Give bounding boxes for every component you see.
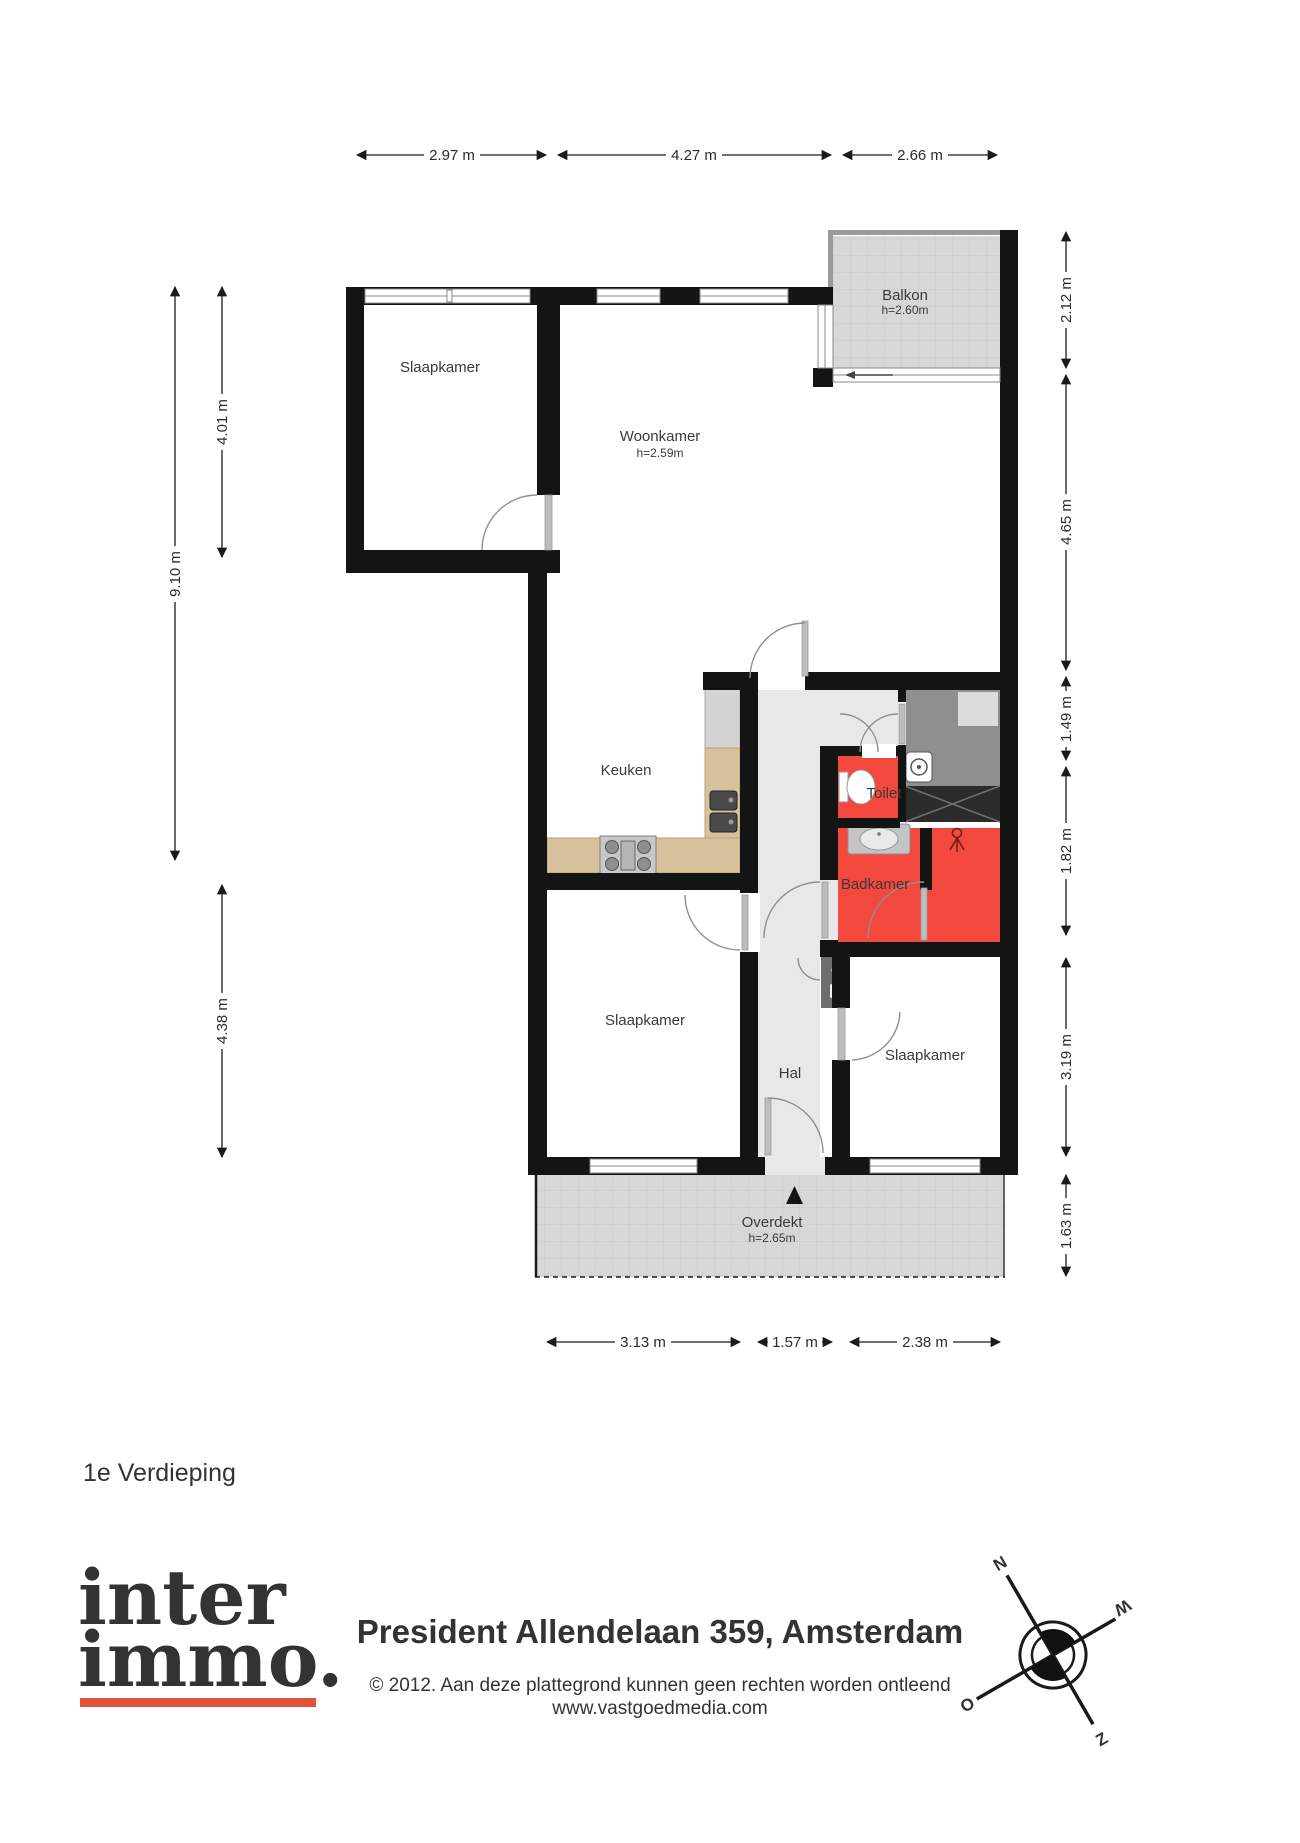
toilet-label: Toilet — [866, 785, 902, 802]
svg-text:2.66 m: 2.66 m — [897, 147, 943, 164]
washing-machine-icon — [906, 752, 932, 782]
address-title: President Allendelaan 359, Amsterdam — [357, 1613, 963, 1650]
copyright-text: © 2012. Aan deze plattegrond kunnen geen… — [369, 1675, 950, 1696]
balkon-label: Balkon — [882, 287, 928, 304]
compass-east-label: O — [957, 1693, 978, 1716]
svg-text:2.12 m: 2.12 m — [1058, 277, 1075, 323]
website-text: www.vastgoedmedia.com — [551, 1698, 767, 1719]
floorplan-canvas: Balkon h=2.60m Woonkamer h=2.59m Slaapka… — [0, 0, 1300, 1838]
slaapkamer-rechts-label: Slaapkamer — [885, 1047, 965, 1064]
dimension-right: 2.12 m 4.65 m 1.49 m 1.82 m 3.19 m 1.63 … — [1057, 232, 1075, 1276]
svg-text:2.97 m: 2.97 m — [429, 147, 475, 164]
svg-text:2.38 m: 2.38 m — [902, 1334, 948, 1351]
svg-text:4.65 m: 4.65 m — [1058, 499, 1075, 545]
svg-text:4.27 m: 4.27 m — [671, 147, 717, 164]
keuken-label: Keuken — [601, 762, 652, 779]
svg-text:4.38 m: 4.38 m — [214, 998, 231, 1044]
badkamer-label: Badkamer — [841, 876, 909, 893]
closet-shelf — [958, 692, 998, 726]
svg-text:3.13 m: 3.13 m — [620, 1334, 666, 1351]
logo-underline — [80, 1698, 316, 1707]
compass-west-label: W — [1110, 1595, 1134, 1620]
floor-title: 1e Verdieping — [83, 1459, 236, 1487]
svg-text:1.49 m: 1.49 m — [1058, 696, 1075, 742]
shaft-box — [905, 786, 1000, 822]
svg-text:1.57 m: 1.57 m — [772, 1334, 818, 1351]
slaapkamer-top-label: Slaapkamer — [400, 359, 480, 376]
svg-text:9.10 m: 9.10 m — [167, 551, 184, 597]
compass-north-label: N — [990, 1552, 1010, 1575]
floorplan-page: Balkon h=2.60m Woonkamer h=2.59m Slaapka… — [0, 0, 1300, 1838]
balkon-height-label: h=2.60m — [881, 303, 928, 317]
compass-rose: N Z O W — [904, 1509, 1186, 1800]
dimension-top: 2.97 m 4.27 m 2.66 m — [357, 146, 997, 164]
dimension-bottom: 3.13 m 1.57 m 2.38 m — [547, 1333, 1000, 1351]
svg-text:1.63 m: 1.63 m — [1058, 1203, 1075, 1249]
svg-text:1.82 m: 1.82 m — [1058, 828, 1075, 874]
logo-line2: immo. — [78, 1615, 344, 1704]
svg-text:4.01 m: 4.01 m — [214, 399, 231, 445]
woonkamer-label: Woonkamer — [620, 428, 701, 445]
compass-south-label: Z — [1093, 1729, 1111, 1751]
overdekt-label: Overdekt — [742, 1214, 804, 1231]
slaapkamer-links-label: Slaapkamer — [605, 1012, 685, 1029]
dimension-left: 4.01 m 9.10 m 4.38 m — [166, 287, 231, 1157]
sink-icon — [848, 824, 910, 854]
hal-label: Hal — [779, 1065, 802, 1082]
svg-text:3.19 m: 3.19 m — [1058, 1034, 1075, 1080]
logo: inter immo. — [78, 1553, 344, 1707]
woonkamer-height-label: h=2.59m — [636, 446, 683, 460]
overdekt-height-label: h=2.65m — [748, 1231, 795, 1245]
stove-icon — [600, 836, 656, 875]
